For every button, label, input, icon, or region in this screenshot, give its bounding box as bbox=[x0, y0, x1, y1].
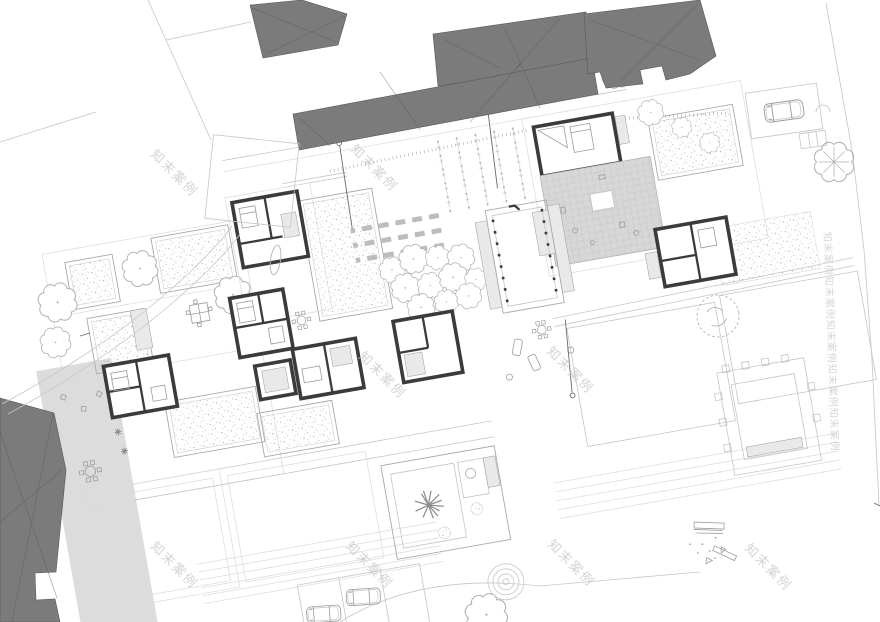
neighbor-roof bbox=[584, 0, 716, 88]
parking-stall-north bbox=[745, 83, 823, 139]
tree-icon bbox=[694, 292, 743, 341]
small-tree-icon bbox=[465, 468, 477, 480]
watermark-text: 知末案例 bbox=[543, 344, 597, 398]
ruin-outline bbox=[710, 351, 828, 477]
parking-area bbox=[262, 564, 431, 622]
colonnade-hall bbox=[473, 198, 576, 315]
car-icon bbox=[306, 605, 341, 622]
watermark-text: 知末案例 bbox=[544, 537, 598, 591]
tree-icon bbox=[463, 591, 510, 622]
neighbor-roof bbox=[250, 0, 347, 58]
house-plan-b bbox=[230, 289, 294, 357]
shrub-icon bbox=[438, 526, 452, 540]
garden-plot bbox=[257, 400, 339, 457]
neighbor-roof bbox=[0, 398, 66, 622]
house-plan-d bbox=[103, 355, 177, 418]
car-icon bbox=[346, 588, 381, 606]
right-house-plan bbox=[641, 217, 736, 289]
watermark-text: 知末案例 bbox=[147, 147, 201, 201]
tree-icon bbox=[38, 325, 73, 360]
watermark-text: 知末案例 bbox=[741, 541, 795, 595]
lounger-icon bbox=[527, 354, 541, 372]
hall-door bbox=[509, 205, 520, 212]
vineyard-rows bbox=[428, 125, 535, 215]
courtyard-pool bbox=[590, 191, 615, 212]
watermark-text: 知末案例 bbox=[147, 539, 201, 593]
garden-plot bbox=[165, 386, 265, 457]
lane-tick bbox=[80, 333, 90, 336]
square-table-icon bbox=[184, 297, 214, 328]
stair-room bbox=[255, 360, 296, 400]
shrub-icon bbox=[470, 502, 484, 516]
boundary-line bbox=[148, 0, 211, 140]
planter-icon bbox=[506, 374, 513, 381]
boundary-line bbox=[166, 22, 251, 40]
spoke-tree-icon bbox=[814, 142, 853, 181]
site-plan-drawing: 知末案例 知末案例 知末案例 知末案例 知末案例 知末案例 知末案例 知末案例 … bbox=[0, 0, 880, 622]
site-plan-sheet: 知末案例 知末案例 知末案例 知末案例 知末案例 知末案例 知末案例 知末案例 … bbox=[0, 0, 880, 622]
lower-courtyard bbox=[381, 446, 511, 560]
tree-icon bbox=[36, 281, 80, 325]
watermark-vertical: 知末案例知末案例知末案例知末案例知末案例 bbox=[821, 232, 842, 452]
house-plan-e bbox=[393, 311, 463, 382]
boundary-line bbox=[0, 112, 96, 142]
awning-arcs bbox=[816, 105, 830, 112]
lounger-icon bbox=[512, 339, 523, 356]
house-plan-c bbox=[292, 338, 364, 398]
car-icon bbox=[763, 99, 804, 123]
watermark-text: 知末案例 bbox=[347, 142, 401, 196]
rock-garden bbox=[686, 516, 738, 568]
palm-tree-icon bbox=[412, 488, 445, 521]
round-table-icon bbox=[531, 320, 552, 340]
